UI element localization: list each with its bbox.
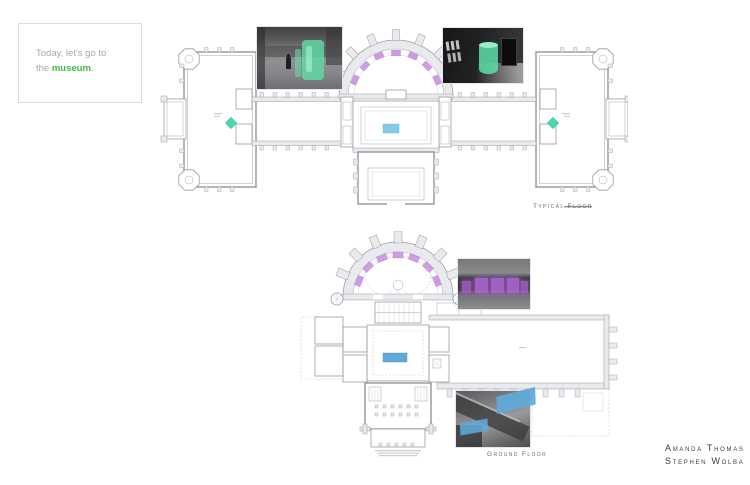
right-wing xyxy=(451,93,536,151)
ground-floor-label: Ground Floor xyxy=(487,451,547,458)
dark-display-case xyxy=(501,38,517,66)
intro-line-1: Today, let's go to xyxy=(36,47,141,62)
corner-tower xyxy=(179,170,199,190)
wall-display-panels xyxy=(445,36,474,65)
purple-alcove xyxy=(521,281,528,293)
info-desk-highlight-blue xyxy=(383,353,407,362)
purple-alcove xyxy=(462,281,471,293)
author-name-1: Amanda Thomas xyxy=(665,442,745,455)
typical-floor-plan-drawing xyxy=(156,2,628,210)
intro-line-2: the museum. xyxy=(36,62,141,77)
ground-central-block xyxy=(343,302,449,456)
visitor-silhouette xyxy=(286,54,291,69)
ground-rotunda xyxy=(331,231,465,305)
right-pavilion xyxy=(536,48,628,192)
photo-dark-gallery-cylinder xyxy=(443,28,523,83)
intro-line-2-prefix: the xyxy=(36,63,52,74)
central-block xyxy=(341,97,451,206)
intro-card: Today, let's go to the museum. xyxy=(18,23,142,103)
photo-gallery-display-case xyxy=(257,27,342,89)
credits-block: Amanda Thomas Stephen Wolba xyxy=(665,442,745,468)
green-highlight-panel xyxy=(295,49,301,77)
purple-alcove xyxy=(475,278,488,293)
photo-stair-hall-blue-desks xyxy=(456,391,530,447)
west-bay xyxy=(164,99,186,139)
corner-tower xyxy=(593,170,613,190)
gallery-column xyxy=(257,27,265,89)
ground-left-annex xyxy=(301,317,343,379)
presentation-board: Today, let's go to the museum. xyxy=(0,0,750,485)
typical-floor-label: Typical Floor xyxy=(533,203,593,210)
photo-rotunda-purple-alcoves xyxy=(458,259,530,309)
green-highlight-display-case xyxy=(302,40,324,80)
rotunda-vestibule xyxy=(386,90,406,99)
intro-line-2-period: . xyxy=(91,63,94,74)
rotunda xyxy=(332,30,459,100)
purple-alcove xyxy=(507,278,519,293)
green-highlight-cylinder xyxy=(479,42,498,74)
skylight-highlight-cyan xyxy=(383,124,399,133)
purple-alcove xyxy=(491,278,504,293)
left-wing xyxy=(252,93,341,151)
author-name-2: Stephen Wolba xyxy=(665,455,745,468)
intro-museum-highlight: museum xyxy=(52,63,91,74)
east-bay xyxy=(606,99,628,139)
left-pavilion xyxy=(161,48,256,192)
case-glass-reflection xyxy=(306,46,312,72)
